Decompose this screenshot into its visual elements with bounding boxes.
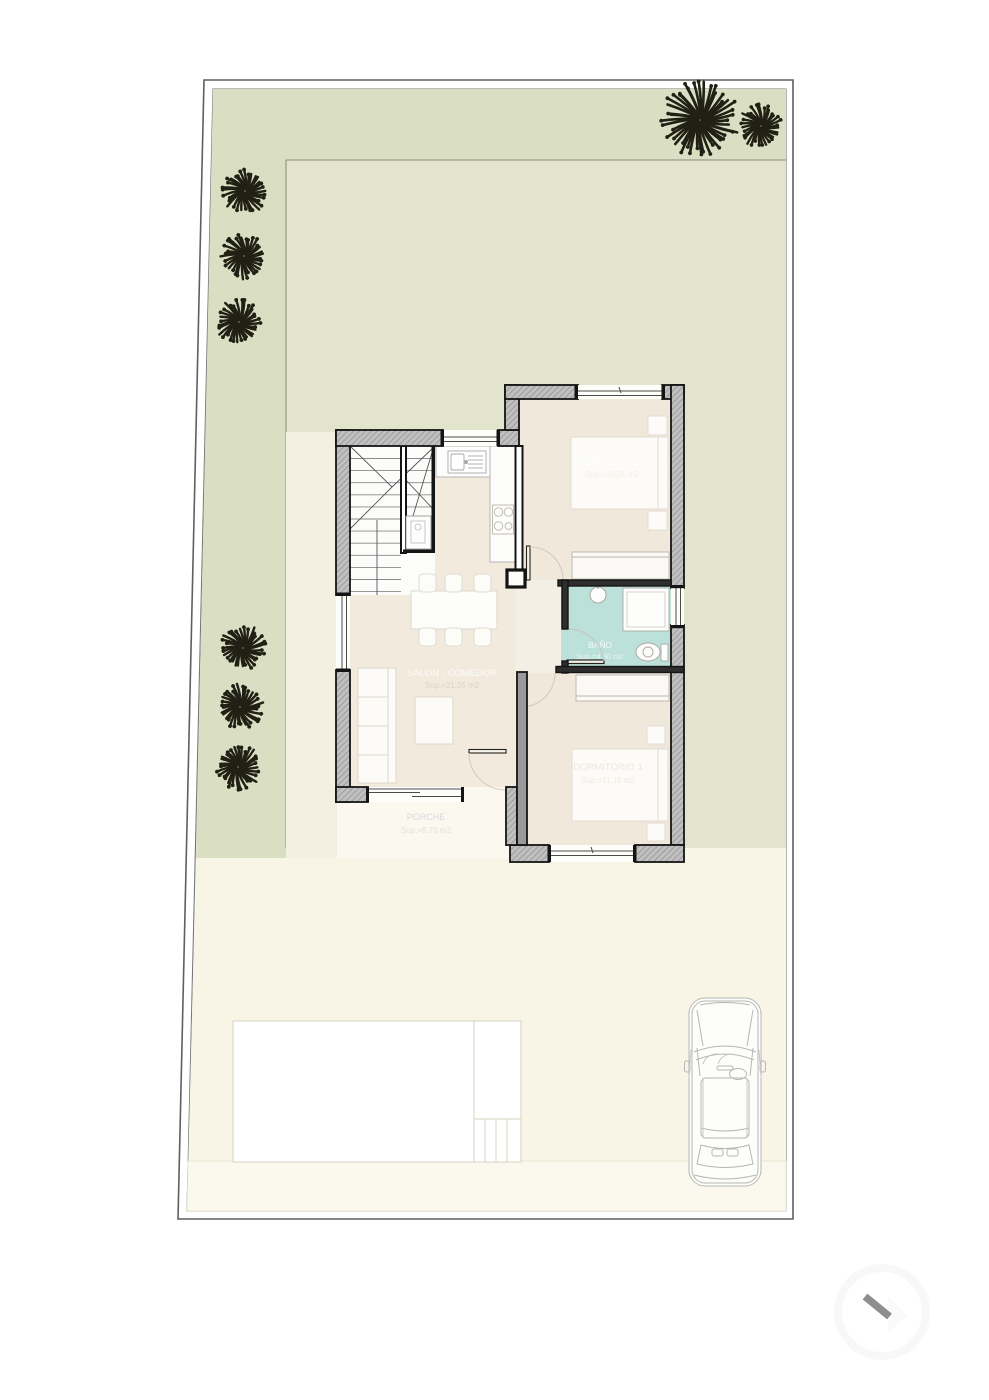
svg-text:Sup.=11,15 m2: Sup.=11,15 m2 — [581, 776, 635, 785]
svg-text:Sup.=21,35 m2: Sup.=21,35 m2 — [425, 681, 480, 690]
svg-text:SALON - COMEDOR: SALON - COMEDOR — [407, 668, 497, 679]
svg-text:DORMITORIO 1: DORMITORIO 1 — [573, 762, 643, 773]
svg-text:Sup.=10,25 m2: Sup.=10,25 m2 — [585, 470, 640, 479]
svg-text:Sup.=9,70 m2: Sup.=9,70 m2 — [401, 826, 452, 835]
svg-text:DORMITORIO 2: DORMITORIO 2 — [577, 457, 647, 468]
svg-text:PORCHE: PORCHE — [407, 812, 446, 822]
